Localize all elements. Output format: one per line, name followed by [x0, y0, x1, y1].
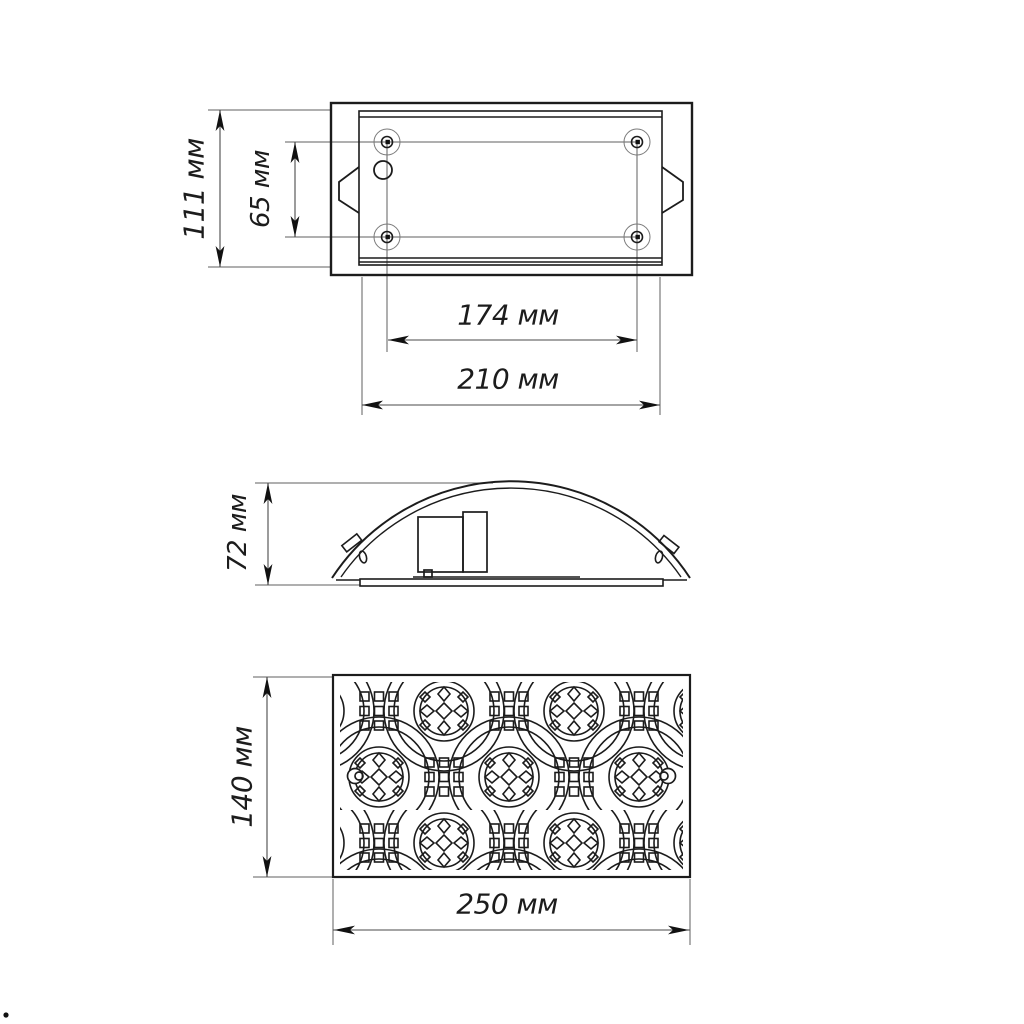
top-view-mounting-base	[208, 103, 692, 415]
lamp-technical-drawing	[0, 0, 1024, 1024]
side-view-profile	[255, 481, 690, 586]
dimension-arrows	[216, 110, 660, 409]
dim-label-front-height: 140 мм	[226, 726, 259, 828]
driver-box	[418, 512, 487, 577]
left-mounting-tab	[339, 167, 359, 213]
side-view-dimension-lines	[264, 483, 273, 585]
top-view-dimension-lines	[216, 110, 660, 409]
dim-label-base-height: 111 мм	[178, 138, 211, 240]
cable-entry-hole	[374, 161, 392, 179]
base-plate-side	[360, 579, 663, 586]
side-view-extension-lines	[255, 483, 493, 585]
base-edge-bands	[359, 117, 662, 262]
dim-label-front-width: 250 мм	[456, 888, 558, 921]
stray-mark-dot	[3, 1012, 8, 1017]
dim-label-side-height: 72 мм	[223, 494, 253, 572]
dim-label-body-width: 210 мм	[457, 363, 559, 396]
dome-inner-arc	[341, 488, 681, 577]
right-mounting-tab	[662, 167, 683, 213]
dim-label-hole-spacing-horizontal: 174 мм	[457, 299, 559, 332]
dim-label-hole-spacing-vertical: 65 мм	[246, 150, 276, 228]
grille-lattice-pattern	[340, 682, 683, 870]
mounting-holes	[374, 129, 650, 250]
engineering-drawing-page: 111 мм 65 мм 174 мм 210 мм 72 мм 140 мм …	[0, 0, 1024, 1024]
base-inner-plate	[359, 111, 662, 265]
